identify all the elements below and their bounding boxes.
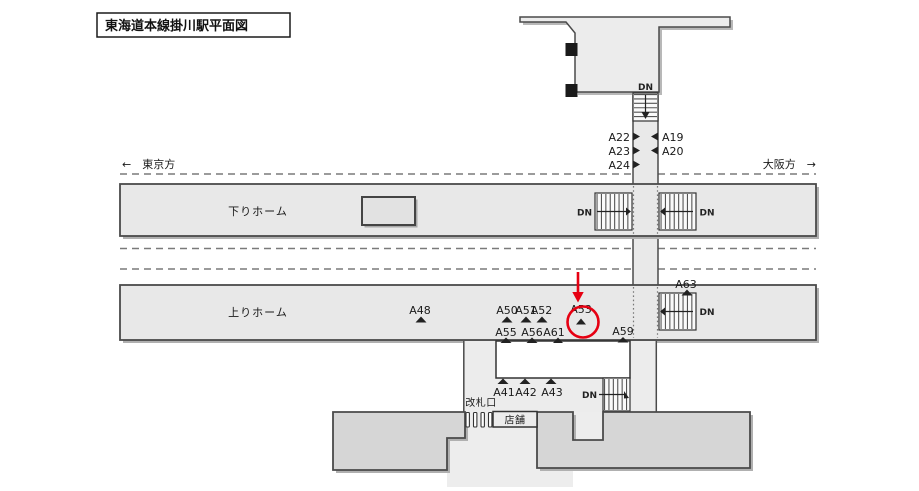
ad-label-a48: A48 — [409, 304, 431, 317]
shop-label: 店舗 — [505, 414, 526, 427]
waiting-room — [362, 197, 418, 228]
building-right-body — [537, 412, 750, 468]
ad-label-a19: A19 — [662, 131, 684, 144]
down-stair-left-dn-label: DN — [577, 209, 592, 219]
ad-label-a59: A59 — [612, 325, 634, 338]
ad-label-a63: A63 — [675, 278, 697, 291]
ad-label-a61: A61 — [543, 326, 565, 339]
ad-label-a43: A43 — [541, 386, 563, 399]
building-entry-notch — [574, 412, 602, 439]
concourse-stair-dn-label: DN — [582, 391, 597, 401]
shop: 店舗 — [493, 412, 537, 428]
ad-label-a41: A41 — [493, 386, 515, 399]
ad-label-a22: A22 — [608, 131, 630, 144]
up-stair-dn-label: DN — [700, 308, 715, 318]
down-stair-right-dn-label: DN — [700, 209, 715, 219]
ad-label-a55: A55 — [495, 326, 517, 339]
ad-label-a23: A23 — [608, 145, 630, 158]
station-building-right — [537, 412, 753, 471]
overpass-door-lower — [566, 84, 578, 97]
gate-machine-3 — [481, 413, 484, 428]
ad-label-a52: A52 — [531, 304, 553, 317]
title-box: 東海道本線掛川駅平面図 — [97, 13, 290, 37]
ad-label-a42: A42 — [515, 386, 537, 399]
concourse-ads: A41 A42 A43 — [493, 379, 563, 400]
ticket-gate-label: 改札口 — [465, 396, 497, 409]
building-left-body — [333, 412, 465, 470]
ad-label-a20: A20 — [662, 145, 684, 158]
corridor-stair-dn-label: DN — [638, 83, 653, 93]
waiting-room-body — [362, 197, 415, 225]
ad-label-a24: A24 — [608, 159, 630, 172]
station-floor-plan: 下りホーム 上りホーム DN A22 A23 A24 A19 A — [0, 0, 919, 491]
gate-machine-2 — [474, 413, 477, 428]
ad-label-a56: A56 — [521, 326, 543, 339]
direction-osaka: 大阪方 → — [763, 157, 816, 171]
gate-machine-1 — [466, 413, 469, 428]
direction-tokyo: ← 東京方 — [122, 157, 175, 171]
up-platform-label: 上りホーム — [228, 306, 288, 319]
overpass-door-upper — [566, 43, 578, 56]
station-building-left — [333, 412, 468, 473]
down-platform-label: 下りホーム — [228, 205, 288, 218]
gate-machine-4 — [489, 413, 492, 428]
stair-void-opening — [496, 341, 630, 378]
page-title: 東海道本線掛川駅平面図 — [105, 18, 248, 34]
